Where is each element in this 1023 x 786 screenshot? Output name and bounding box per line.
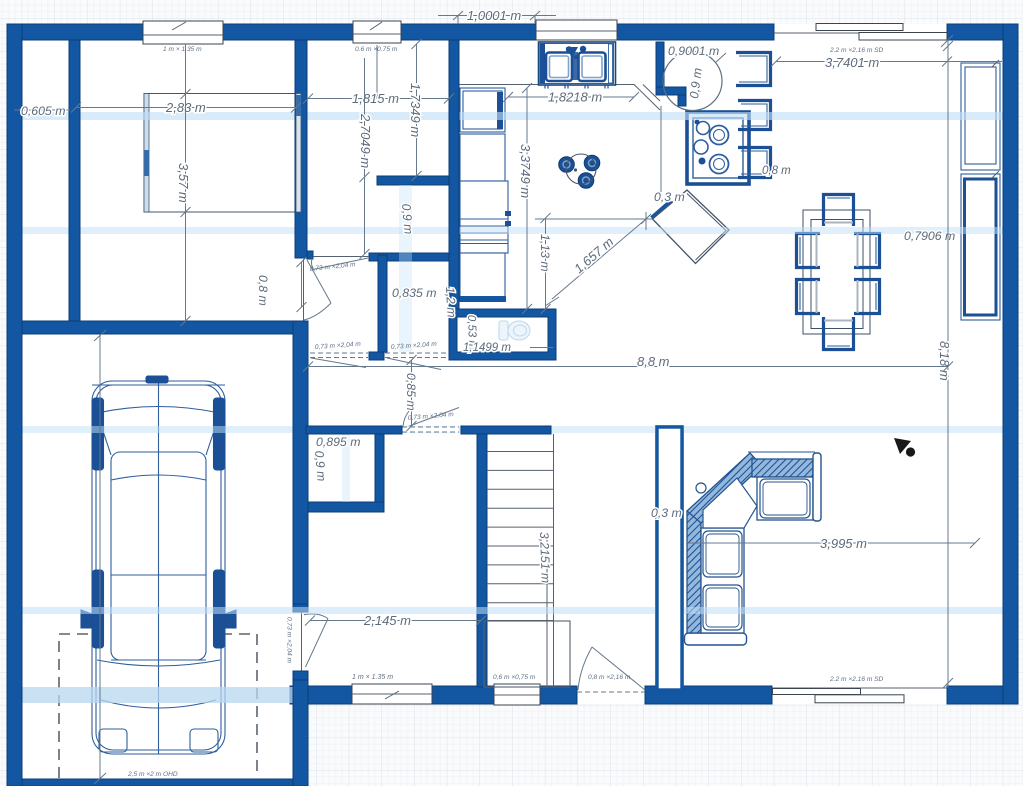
svg-text:3,57 m: 3,57 m xyxy=(176,163,191,203)
svg-text:0,3 m: 0,3 m xyxy=(651,506,682,520)
svg-text:0,85 m: 0,85 m xyxy=(404,373,418,411)
svg-text:0.6 m ×0.75 m: 0.6 m ×0.75 m xyxy=(355,46,398,53)
svg-text:0,6 m ×0,75 m: 0,6 m ×0,75 m xyxy=(493,674,536,681)
svg-text:1,2 m: 1,2 m xyxy=(443,286,459,317)
svg-text:0,9 m: 0,9 m xyxy=(399,203,416,235)
svg-text:1 m × 1.35 m: 1 m × 1.35 m xyxy=(352,674,393,681)
svg-text:1,8218 m: 1,8218 m xyxy=(548,90,602,105)
svg-text:3,995 m: 3,995 m xyxy=(820,536,867,551)
svg-text:3,3749 m: 3,3749 m xyxy=(518,144,533,198)
svg-text:0,895 m: 0,895 m xyxy=(316,435,360,449)
svg-text:0,8 m: 0,8 m xyxy=(256,275,270,306)
svg-text:8,18 m: 8,18 m xyxy=(937,341,952,381)
svg-text:0,8 m ×2,16 m: 0,8 m ×2,16 m xyxy=(588,674,631,681)
svg-text:0,605 m: 0,605 m xyxy=(21,104,65,118)
svg-text:2,7049 m: 2,7049 m xyxy=(358,113,373,168)
svg-text:1,7349 m: 1,7349 m xyxy=(408,83,423,137)
svg-text:1,1499 m: 1,1499 m xyxy=(463,342,511,354)
svg-text:2.2 m ×2.16 m SD: 2.2 m ×2.16 m SD xyxy=(829,676,884,683)
svg-text:8,8 m: 8,8 m xyxy=(637,354,670,369)
svg-text:0,835 m: 0,835 m xyxy=(392,286,436,300)
svg-text:1,815 m: 1,815 m xyxy=(352,91,399,106)
svg-text:3,2151 m: 3,2151 m xyxy=(537,532,553,584)
svg-text:0,8 m: 0,8 m xyxy=(762,165,791,177)
svg-text:0,3 m: 0,3 m xyxy=(654,190,685,204)
svg-text:2,5 m ×2 m OHD: 2,5 m ×2 m OHD xyxy=(127,771,178,778)
svg-text:2,145 m: 2,145 m xyxy=(363,613,411,628)
svg-text:0,9001 m: 0,9001 m xyxy=(668,44,719,58)
svg-text:0,9 m: 0,9 m xyxy=(312,450,329,482)
svg-text:1,0001 m: 1,0001 m xyxy=(467,8,521,23)
svg-text:3,7401 m: 3,7401 m xyxy=(825,55,879,70)
svg-text:1,13 m: 1,13 m xyxy=(538,234,552,272)
svg-text:1 m × 1.35 m: 1 m × 1.35 m xyxy=(163,46,202,53)
svg-text:2.2 m ×2.16 m SD: 2.2 m ×2.16 m SD xyxy=(829,47,884,54)
svg-text:0,73 m ×2,04 m: 0,73 m ×2,04 m xyxy=(286,617,293,664)
